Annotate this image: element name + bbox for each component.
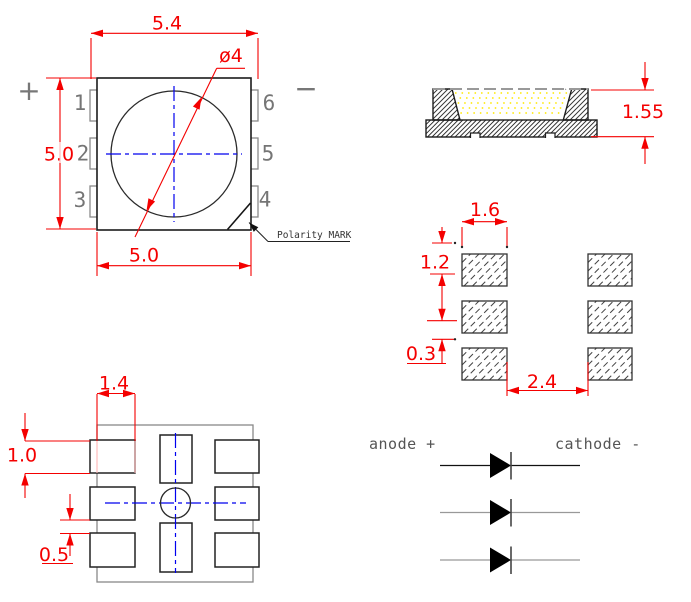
anode-label: anode + — [369, 435, 436, 453]
pin-label-4: 4 — [259, 188, 272, 212]
dim-column-gap: 2.4 — [527, 371, 557, 393]
diode-symbol — [440, 452, 580, 480]
phosphor-region — [452, 90, 572, 121]
pin-label-1: 1 — [74, 91, 87, 115]
pin-label-2: 2 — [77, 142, 90, 166]
diode-symbol — [440, 499, 580, 527]
dim-bottom-pad-gap: 0.5 — [39, 544, 69, 566]
diode-symbol — [440, 547, 580, 575]
dim-bottom-pad-height: 1.0 — [7, 445, 37, 467]
pin-label-5: 5 — [262, 142, 275, 166]
minus-symbol: − — [294, 72, 317, 105]
led-package-datasheet-drawing: 1 2 3 6 5 4 + − Polarity MARK 5.4 5.0 5.… — [0, 0, 691, 602]
diode-triangle — [490, 500, 511, 525]
circuit-diagram: anode + cathode - — [369, 435, 641, 574]
bottom-view: 1.4 1.0 0.5 — [7, 373, 259, 583]
polarity-mark-label: Polarity MARK — [277, 230, 352, 241]
bottom-pad — [90, 533, 135, 567]
dim-pad-pitch: 1.2 — [420, 252, 450, 274]
cathode-label: cathode - — [555, 435, 641, 453]
side-view: 1.55 — [426, 89, 664, 138]
dim-pad-width: 1.6 — [470, 199, 500, 221]
base-notch — [546, 133, 556, 138]
technical-drawing-svg: 1 2 3 6 5 4 + − Polarity MARK 5.4 5.0 5.… — [0, 0, 691, 602]
dim-overall-width: 5.4 — [152, 13, 182, 35]
dim-body-width: 5.0 — [129, 245, 159, 267]
diode-triangle — [490, 453, 511, 478]
dim-pad-gap: 0.3 — [406, 343, 436, 365]
dim-lens-diameter: ø4 — [219, 45, 243, 67]
pin-label-6: 6 — [263, 91, 276, 115]
base-notch — [471, 133, 481, 138]
bottom-pad — [215, 533, 259, 567]
bottom-pad — [215, 440, 259, 473]
diode-triangle — [490, 548, 511, 573]
plus-symbol: + — [17, 74, 40, 107]
top-view: 1 2 3 6 5 4 + − Polarity MARK 5.4 5.0 5.… — [17, 13, 351, 267]
pin-label-3: 3 — [74, 188, 87, 212]
dim-body-height: 5.0 — [44, 144, 74, 166]
dim-package-height: 1.55 — [622, 101, 664, 123]
